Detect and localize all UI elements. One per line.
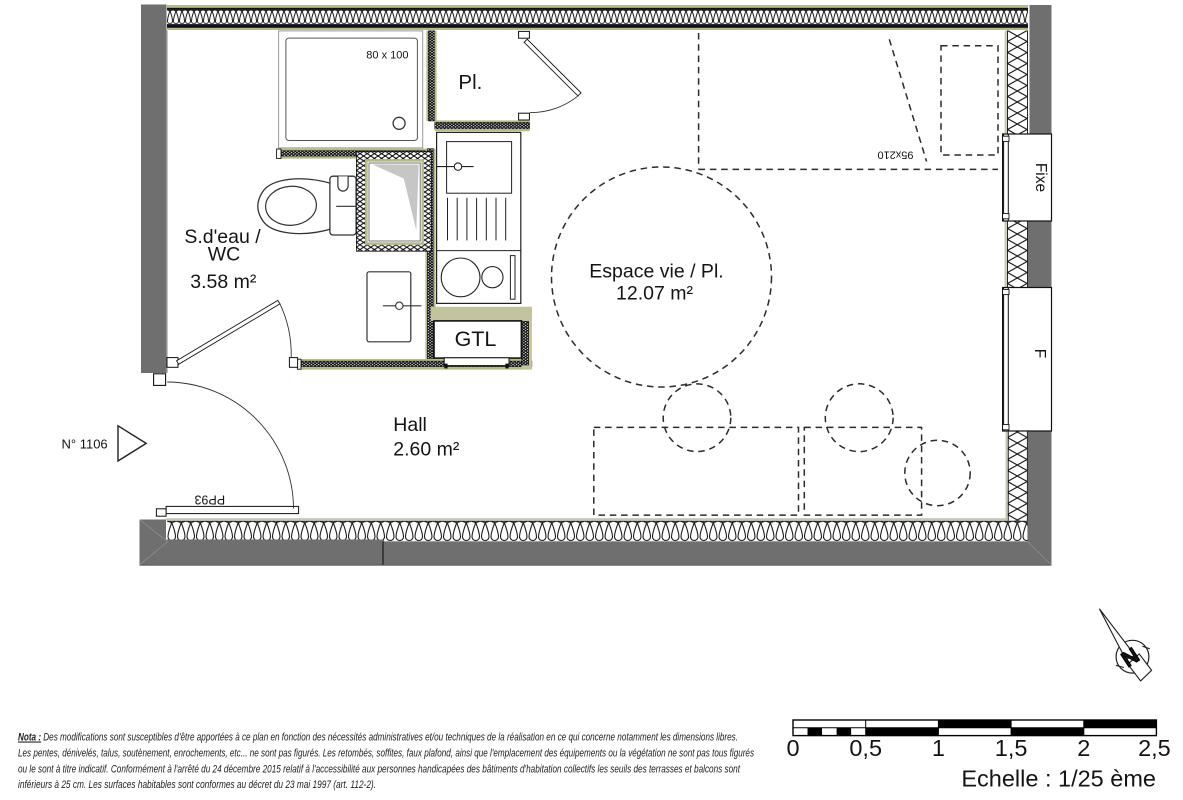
- svg-text:ou le sont à titre indicatif.: ou le sont à titre indicatif. Conforméme…: [18, 763, 741, 775]
- svg-text:2,5: 2,5: [1138, 735, 1171, 761]
- svg-text:12.07 m²: 12.07 m²: [616, 283, 693, 305]
- svg-text:N° 1106: N° 1106: [62, 437, 108, 452]
- svg-text:Echelle : 1/25 ème: Echelle : 1/25 ème: [961, 766, 1156, 792]
- svg-text:Espace vie / Pl.: Espace vie / Pl.: [589, 260, 723, 282]
- svg-text:80 x 100: 80 x 100: [366, 50, 408, 62]
- svg-text:2: 2: [1077, 735, 1090, 761]
- svg-text:WC: WC: [208, 244, 241, 266]
- svg-text:Nota : Des modifications sont: Nota : Des modifications sont susceptibl…: [18, 732, 738, 744]
- svg-text:95x210: 95x210: [877, 149, 913, 161]
- svg-text:0,5: 0,5: [849, 735, 882, 761]
- svg-text:1,5: 1,5: [995, 735, 1028, 761]
- svg-text:Fixe: Fixe: [1032, 163, 1049, 192]
- svg-text:Pl.: Pl.: [458, 71, 482, 94]
- svg-text:3.58 m²: 3.58 m²: [190, 271, 257, 293]
- svg-text:inférieurs à 25 cm. Les surfac: inférieurs à 25 cm. Les surfaces habitab…: [18, 779, 376, 791]
- svg-text:PP93: PP93: [194, 493, 225, 507]
- svg-text:Les pentes, dénivelés, talus,: Les pentes, dénivelés, talus, soutènemen…: [18, 748, 754, 760]
- svg-text:Hall: Hall: [393, 414, 427, 436]
- svg-text:GTL: GTL: [455, 327, 497, 351]
- svg-text:0: 0: [786, 735, 799, 761]
- svg-text:1: 1: [932, 735, 945, 761]
- svg-text:2.60 m²: 2.60 m²: [393, 438, 460, 460]
- svg-text:F: F: [1031, 349, 1048, 358]
